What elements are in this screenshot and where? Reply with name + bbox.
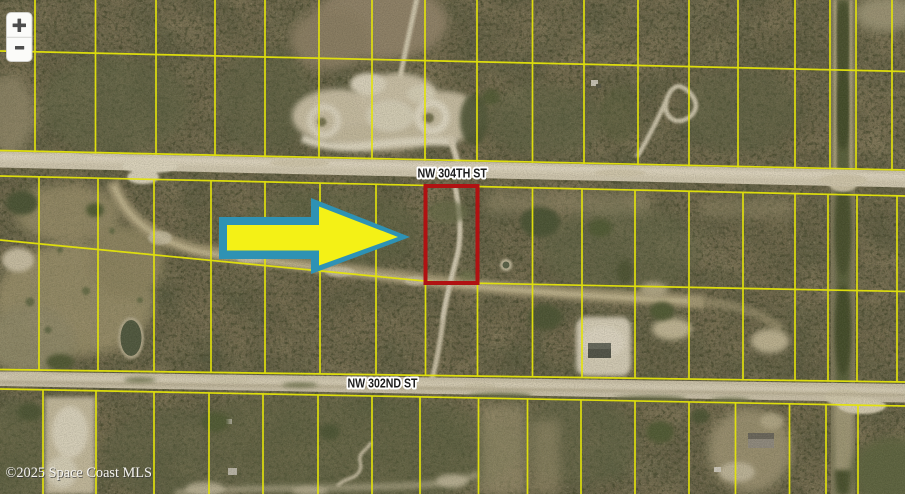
svg-text:NW 302ND ST: NW 302ND ST [348,376,418,390]
svg-text:©2025 Space Coast MLS: ©2025 Space Coast MLS [6,465,153,481]
svg-text:NW 304TH ST: NW 304TH ST [417,167,487,181]
